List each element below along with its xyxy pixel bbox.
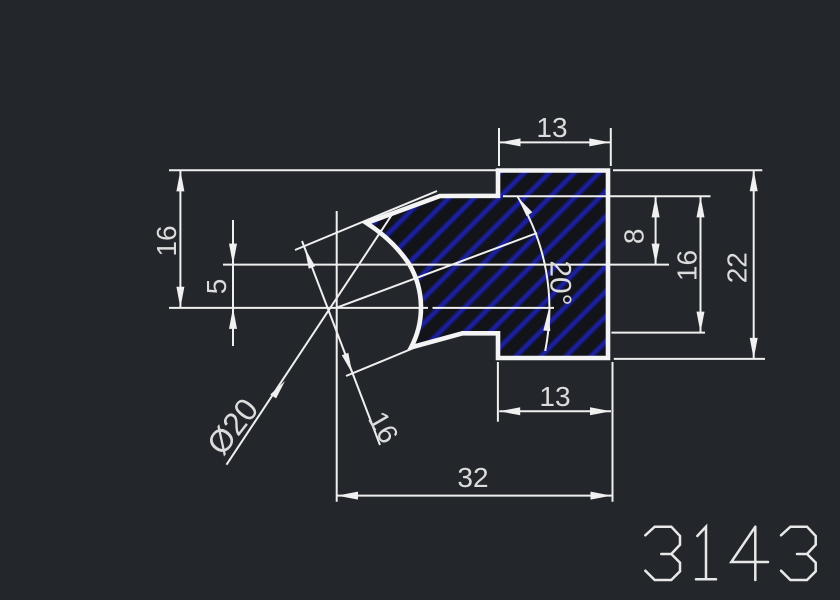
svg-text:Ø20: Ø20: [200, 392, 266, 462]
svg-text:13: 13: [536, 112, 567, 143]
svg-text:22: 22: [722, 252, 753, 283]
svg-text:8: 8: [619, 229, 650, 245]
svg-text:32: 32: [457, 462, 488, 493]
svg-text:13: 13: [539, 381, 570, 412]
svg-text:20°: 20°: [543, 260, 576, 305]
svg-text:5: 5: [201, 279, 232, 295]
svg-text:16: 16: [672, 250, 703, 281]
svg-text:16: 16: [151, 225, 182, 256]
